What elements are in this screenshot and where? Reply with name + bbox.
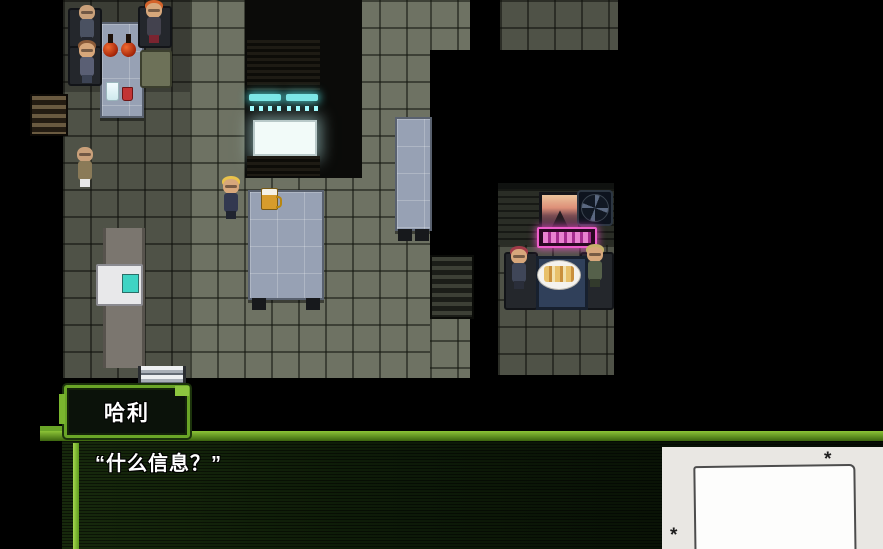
fan-blades: [581, 194, 609, 222]
floor-top-notch[interactable]: [430, 0, 470, 50]
cocktail-glass: [106, 82, 119, 101]
light-dots-2: [287, 106, 318, 111]
npc-redhead-patron-seated[interactable]: [143, 0, 165, 46]
shelf-pillar: [430, 255, 474, 319]
npc-legs: [590, 279, 600, 287]
npc-face: [81, 11, 93, 14]
wall-fan: [577, 190, 613, 226]
sketch-rectangle: [693, 464, 856, 549]
light-dots-1: [250, 106, 281, 111]
npc-bald-man-standing[interactable]: [74, 144, 96, 190]
sandwiches: [544, 266, 574, 282]
asterisk-bottom-left: *: [670, 525, 677, 547]
npc-legs: [149, 35, 159, 43]
food-plate: [537, 260, 581, 290]
npc-body: [78, 161, 92, 180]
table-foot: [415, 229, 429, 241]
npc-face: [513, 255, 525, 258]
npc-body: [512, 263, 526, 282]
npc-body: [224, 193, 238, 212]
npc-face: [81, 49, 93, 52]
table-foot: [398, 229, 412, 241]
picture-frame[interactable]: [539, 192, 581, 232]
speaker-name: 哈利: [104, 397, 150, 427]
dialogue-text: “什么信息？”: [95, 447, 222, 476]
npc-body: [147, 17, 161, 36]
npc-legs: [80, 179, 90, 187]
floor-top-right-patch[interactable]: [500, 0, 618, 50]
npc-legs: [226, 211, 236, 219]
npc-face: [225, 185, 237, 188]
red-drink: [122, 87, 133, 101]
ceiling-light-1: [249, 94, 281, 101]
liquor-bottle-1: [103, 42, 118, 57]
center-wall: [245, 0, 362, 178]
side-table[interactable]: [395, 117, 432, 231]
liquor-bottle-2: [121, 42, 136, 57]
counter-foot: [252, 298, 266, 310]
neon-sign-glyphs: [543, 232, 591, 243]
game-viewport: 哈利 “什么信息？” * *: [0, 0, 883, 549]
message-left-bar: [73, 443, 79, 549]
npc-blonde-player[interactable]: [220, 176, 242, 222]
npc-body: [80, 19, 94, 38]
wall-slats-bottom: [247, 156, 320, 176]
bar-counter[interactable]: [248, 190, 324, 300]
counter-foot: [306, 298, 320, 310]
floor-bottom-right-bit[interactable]: [430, 313, 470, 378]
beer-mug[interactable]: [261, 188, 278, 210]
npc-body: [80, 57, 94, 76]
npc-booth-blonde[interactable]: [584, 244, 606, 290]
bookshelf[interactable]: [30, 94, 68, 136]
asterisk-top-right: *: [824, 449, 831, 471]
npc-brunette-patron-seated[interactable]: [76, 40, 98, 86]
ceiling-light-2: [286, 94, 318, 101]
npc-face: [589, 253, 601, 256]
npc-booth-redhead[interactable]: [508, 246, 530, 292]
npc-legs: [82, 75, 92, 83]
vending-machine[interactable]: [96, 264, 143, 306]
wall-screen[interactable]: [253, 120, 317, 156]
chair-empty: [140, 50, 172, 88]
npc-face: [79, 153, 91, 156]
sketch-overlay: * *: [662, 447, 883, 549]
npc-legs: [514, 281, 524, 289]
speaker-name-box: 哈利: [64, 385, 190, 438]
wall-slats-top: [247, 40, 320, 90]
npc-face: [148, 9, 160, 12]
vending-screen: [122, 274, 139, 293]
npc-body: [588, 261, 602, 280]
